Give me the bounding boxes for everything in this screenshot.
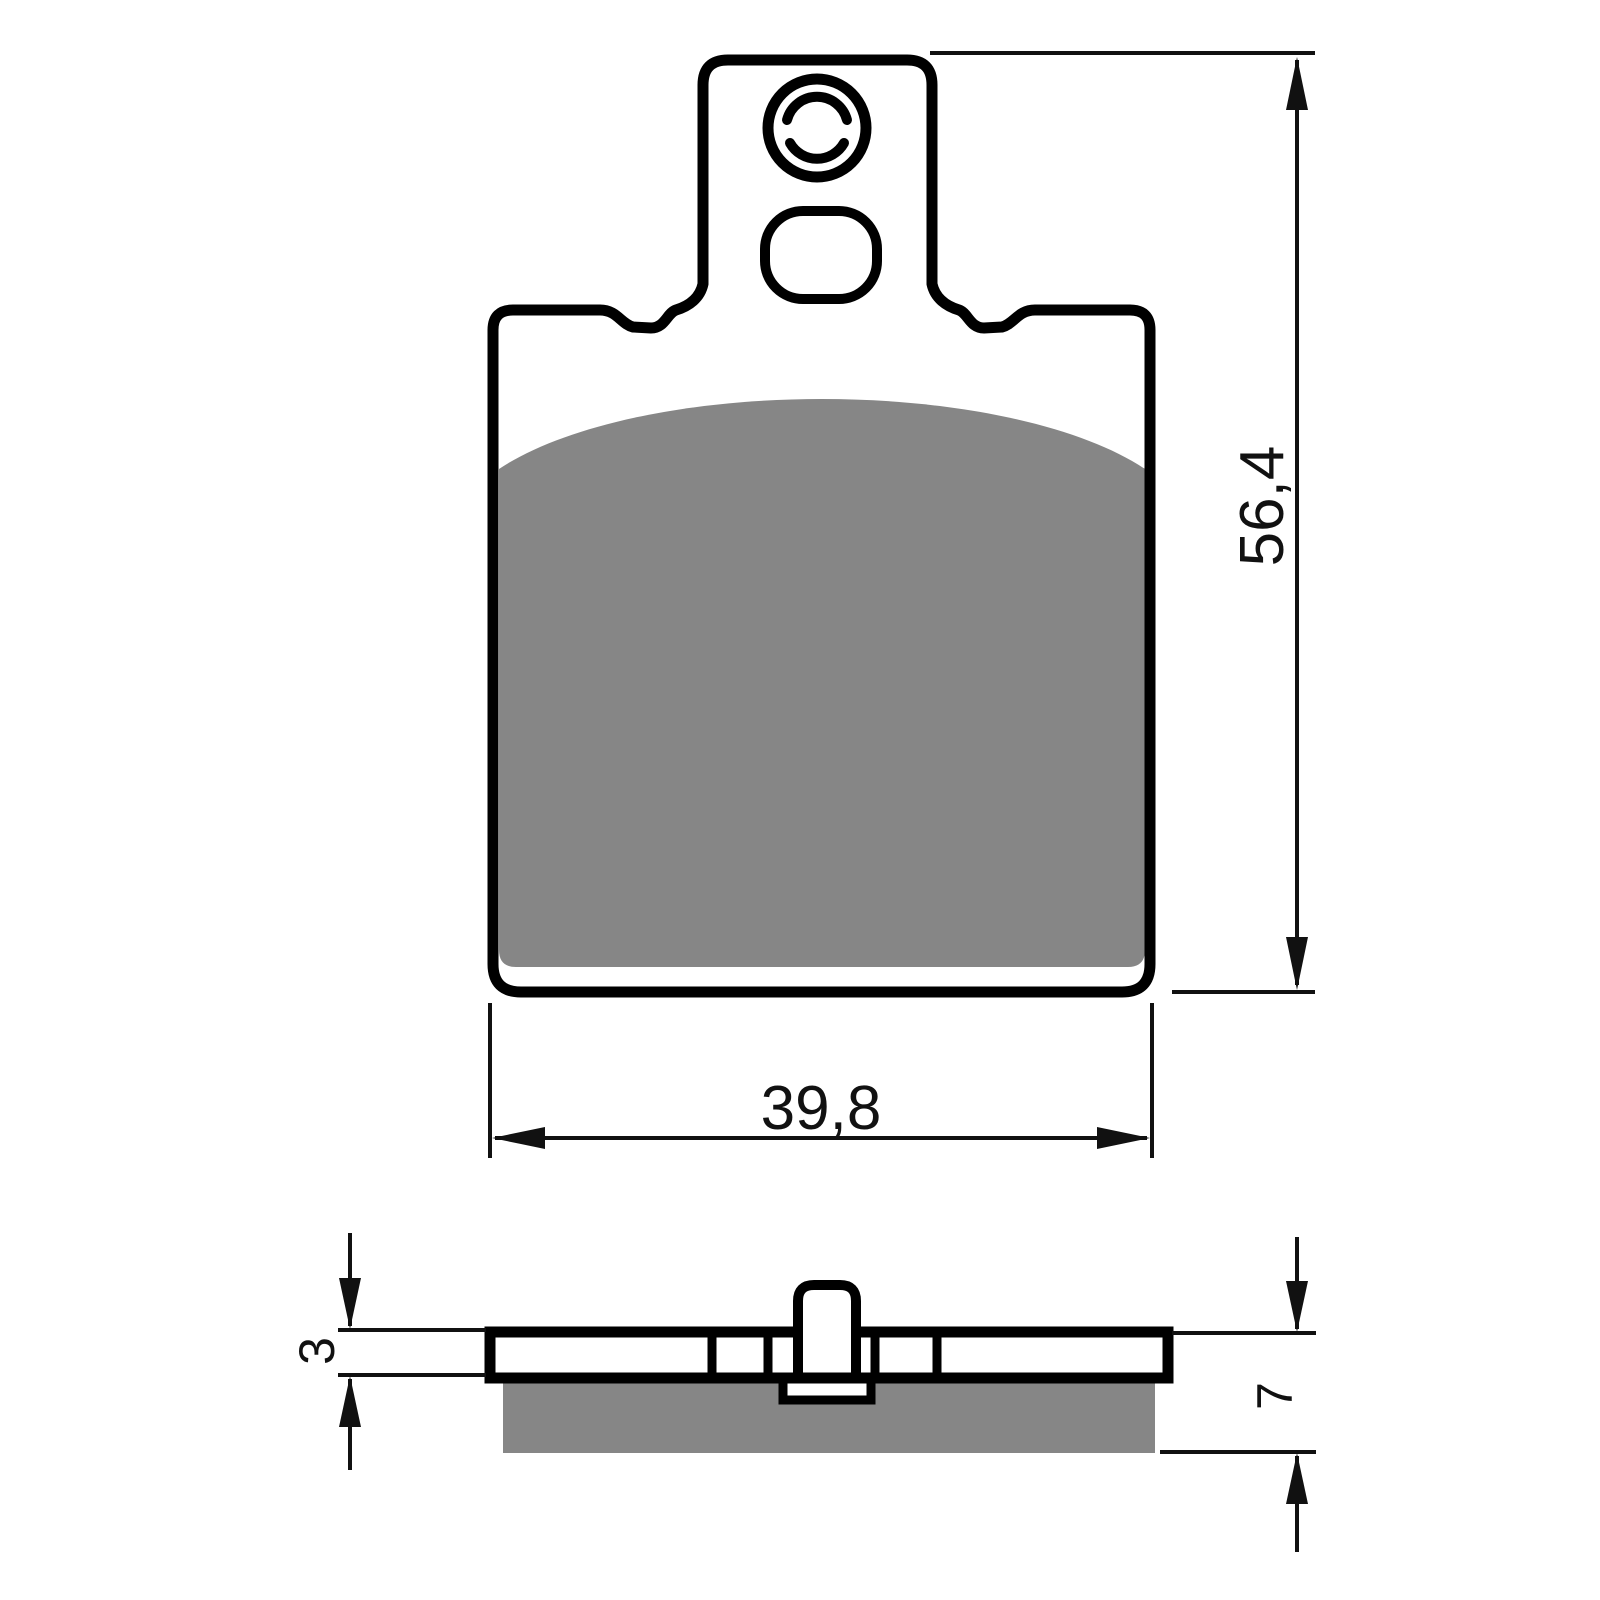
total-thickness-label: 7: [1247, 1382, 1303, 1410]
height-arrow-bottom: [1286, 937, 1308, 990]
width-dim-label: 39,8: [761, 1074, 882, 1143]
plate-thickness-label: 3: [289, 1337, 345, 1365]
side-view: [490, 1285, 1168, 1453]
front-view: [493, 60, 1150, 992]
dimension-plate-thickness: 3: [289, 1233, 486, 1470]
total-arrow-lower: [1286, 1453, 1308, 1504]
brake-pad-technical-drawing: 56,4 39,8 3 7: [0, 0, 1600, 1600]
tab-side: [798, 1285, 856, 1379]
dimension-total-thickness: 7: [1160, 1237, 1316, 1552]
dimension-pad-width: 39,8: [490, 1003, 1152, 1158]
plate-arrow-upper: [339, 1278, 361, 1329]
pin-hole: [765, 211, 877, 299]
total-arrow-upper: [1286, 1281, 1308, 1332]
width-arrow-right: [1097, 1127, 1150, 1149]
height-arrow-top: [1286, 57, 1308, 110]
plate-arrow-lower: [339, 1376, 361, 1427]
drawing-svg: 56,4 39,8 3 7: [0, 0, 1600, 1600]
height-dim-label: 56,4: [1228, 446, 1297, 567]
friction-material-front: [499, 399, 1145, 967]
width-arrow-left: [492, 1127, 545, 1149]
